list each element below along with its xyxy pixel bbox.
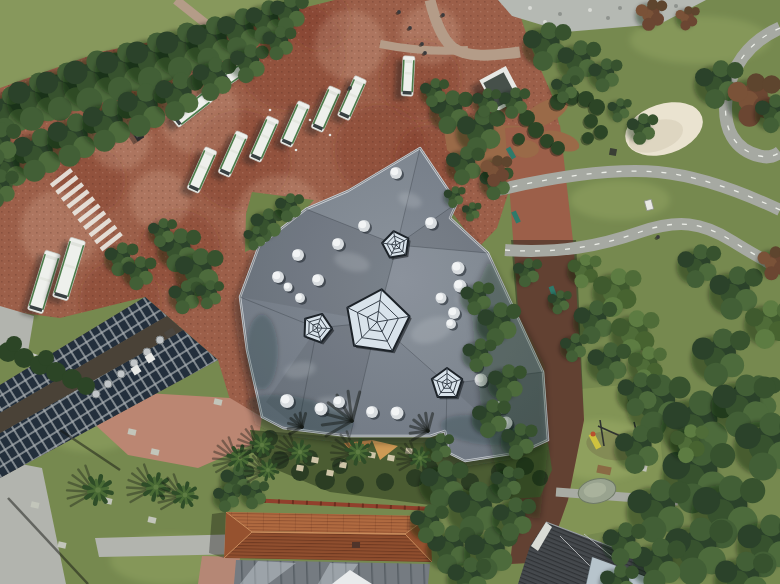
aerial-photograph <box>0 0 780 584</box>
terracotta-building <box>209 512 432 562</box>
birds <box>309 119 312 122</box>
dark-bench <box>609 148 617 156</box>
glass-atrium <box>234 560 430 584</box>
pink-pavement <box>198 556 240 584</box>
birds <box>329 134 332 137</box>
birds <box>295 149 298 152</box>
birds <box>269 109 272 112</box>
parked-bus <box>401 56 415 97</box>
scene-canvas <box>0 0 780 584</box>
